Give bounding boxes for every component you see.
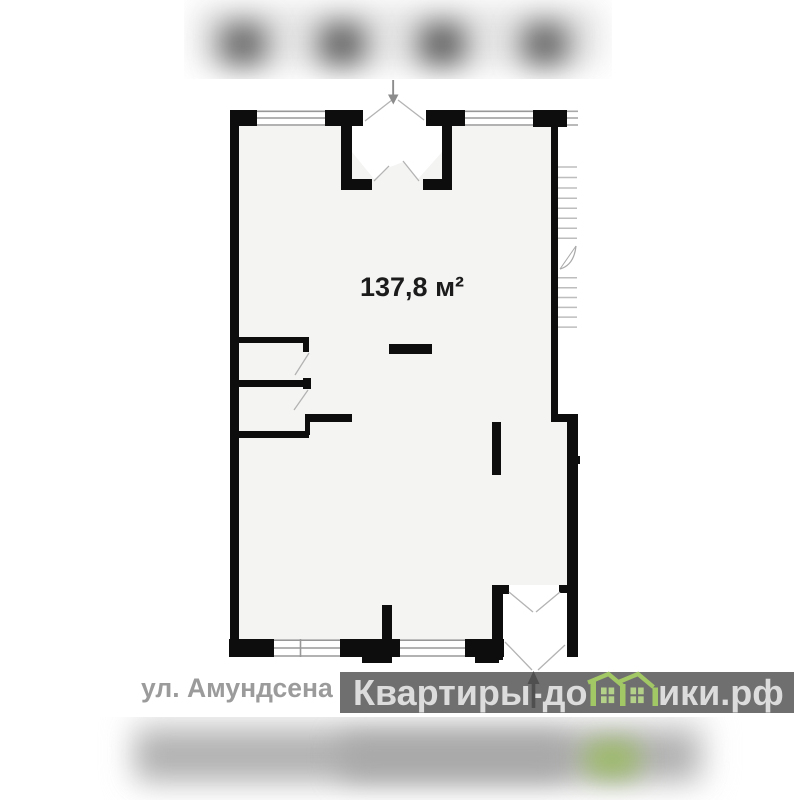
svg-text:Квартиры-до: Квартиры-до <box>353 672 588 713</box>
svg-text:137,8 м²: 137,8 м² <box>360 272 464 302</box>
svg-text:ики.рф: ики.рф <box>658 672 784 713</box>
svg-text:ул. Амундсена: ул. Амундсена <box>141 673 333 703</box>
